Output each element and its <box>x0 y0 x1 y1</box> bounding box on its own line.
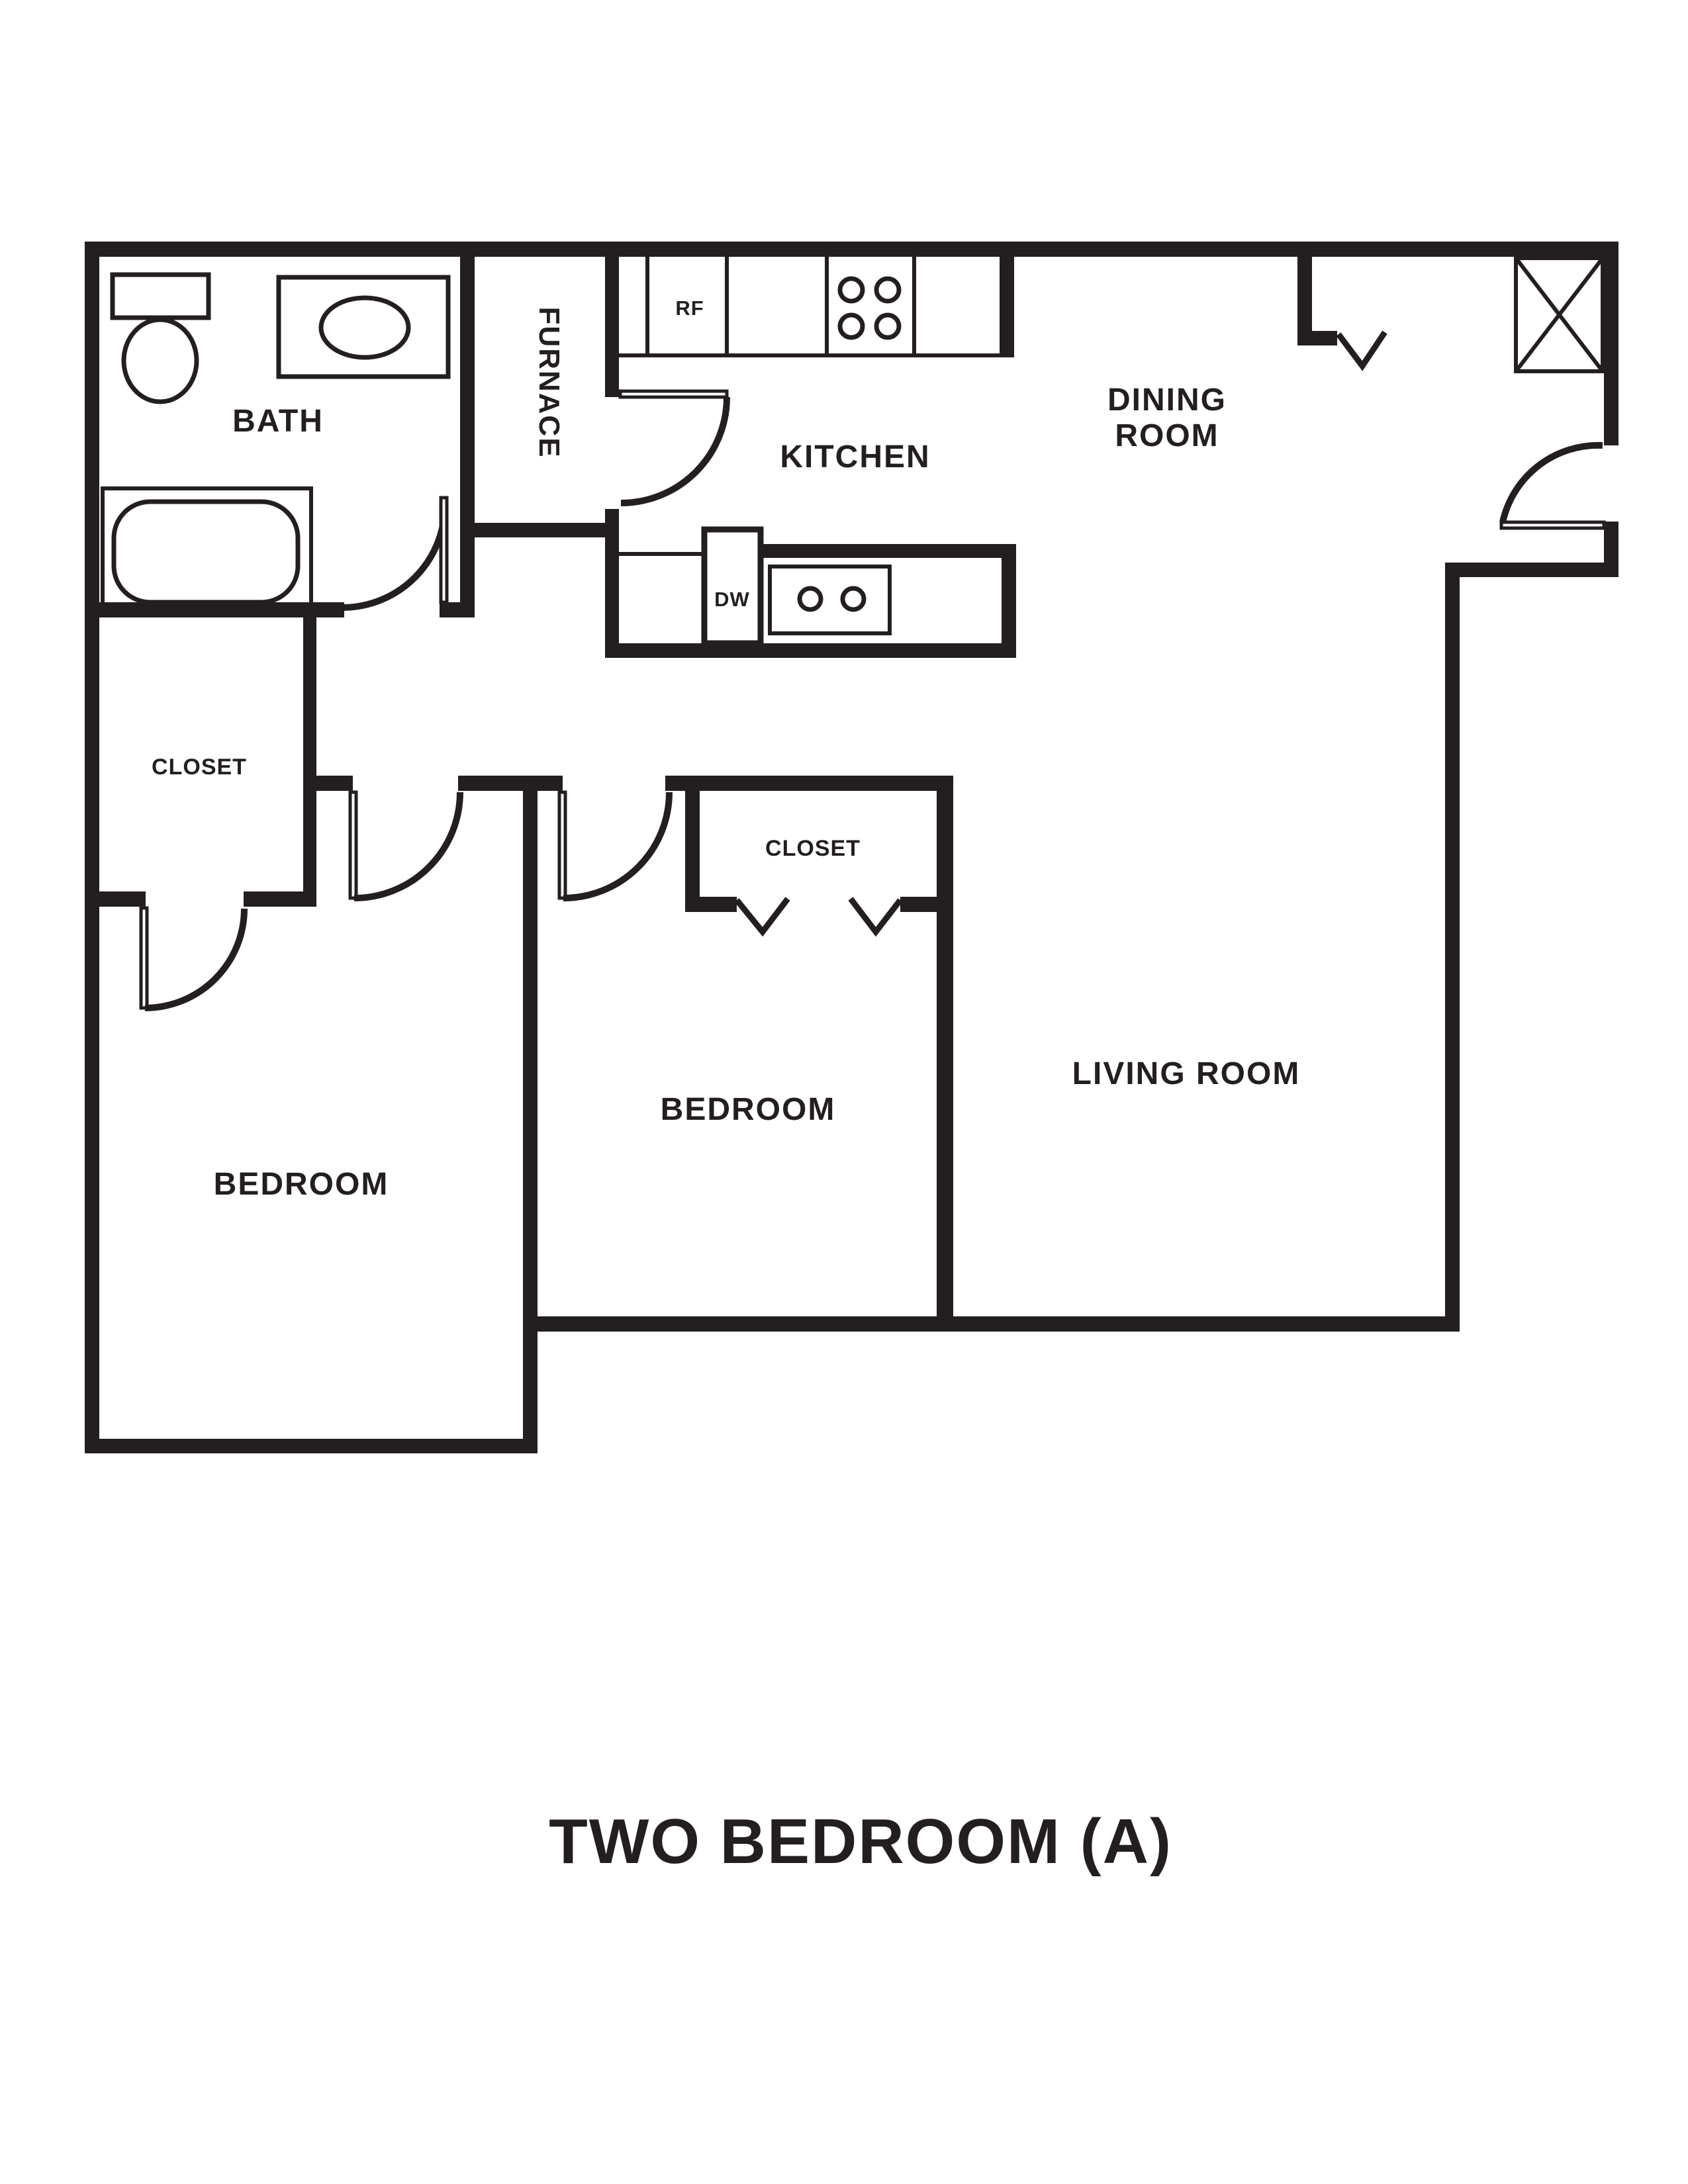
plan-title: TWO BEDROOM (A) <box>549 1806 1172 1877</box>
dining-room-label-line2: ROOM <box>1115 418 1219 453</box>
bath-door-arc <box>344 507 445 608</box>
closet-left-label: CLOSET <box>152 754 247 780</box>
wall-kitchen-left-upper <box>605 253 619 397</box>
wall-closet-left-bottom-e <box>244 891 303 907</box>
wall-counter-low-top <box>761 544 1016 558</box>
bedroom-left-door-arc <box>354 792 460 898</box>
wall-closet-left-bottom-w <box>99 891 146 907</box>
wall-left <box>85 253 99 1453</box>
wall-furnace-bottom <box>460 523 619 537</box>
bedroom-left-label: BEDROOM <box>214 1167 389 1202</box>
water-heater-icon <box>1516 258 1603 371</box>
wall-closet-mid-stub-r <box>900 897 937 912</box>
kitchen-label: KITCHEN <box>780 439 930 475</box>
wall-closet-mid-top <box>665 776 953 791</box>
furnace-label: FURNACE <box>533 306 565 458</box>
entry-door-arc <box>1503 445 1603 522</box>
doors <box>141 391 1604 1008</box>
dishwasher-label: DW <box>714 588 750 611</box>
wall-south <box>523 1316 1460 1332</box>
closet-mid-vmark-right <box>851 899 900 932</box>
wall-hall-seg-b <box>458 776 563 791</box>
wall-entry-jog <box>1445 563 1618 577</box>
bedroom-middle-door-arc <box>563 792 669 898</box>
wall-bath-door-stub <box>440 602 475 617</box>
bath-label: BATH <box>232 404 324 439</box>
wall-closet-mid-stub-l <box>700 897 737 912</box>
bedroom-middle-label: BEDROOM <box>661 1092 836 1127</box>
living-room-label: LIVING ROOM <box>1072 1056 1301 1091</box>
toilet-icon <box>113 275 209 402</box>
wall-bedroom-living-divider <box>937 791 953 1332</box>
dining-vmark <box>1338 332 1385 366</box>
wall-dining-nib <box>1312 331 1337 345</box>
stove-burners-icon <box>840 279 899 338</box>
wall-kitchen-left-lower <box>605 509 619 658</box>
bath-sink-icon <box>279 277 448 377</box>
wall-right-stub <box>1604 522 1618 577</box>
furnace-door-leaf <box>620 391 727 397</box>
refrigerator-label: RF <box>675 296 704 320</box>
wall-counter-low-right <box>1002 544 1016 658</box>
bathtub-icon <box>103 488 311 615</box>
wall-bedroom-left-bottom <box>85 1439 538 1453</box>
wall-closet-mid-left <box>685 791 700 912</box>
wall-counter-low-bottom <box>605 643 1016 658</box>
bedroom-middle-door-leaf <box>559 792 565 898</box>
closet-middle-label: CLOSET <box>765 836 861 861</box>
wall-bath-furnace-divider <box>460 253 475 617</box>
dishwasher-icon <box>704 529 761 643</box>
wall-hall-seg-a <box>303 776 353 791</box>
closet-left-door-arc <box>145 909 244 1008</box>
bedroom-left-door-leaf <box>350 792 356 898</box>
floor-plan-drawing: BATH FURNACE KITCHEN DINING ROOM RF DW C… <box>0 0 1688 2184</box>
entry-door-leaf <box>1501 522 1604 528</box>
furnace-door-arc <box>621 397 727 503</box>
bath-fixtures <box>103 275 448 615</box>
wall-dining-divider <box>1297 253 1312 345</box>
wall-right-upper <box>1604 253 1618 445</box>
page-body: { "plan": { "title": "TWO BEDROOM (A)", … <box>0 0 1688 2184</box>
wall-top <box>85 242 1618 257</box>
kitchen-sink-icon <box>770 567 890 633</box>
closet-mid-vmark-left <box>737 899 788 932</box>
wall-bedroom-divider <box>523 791 538 1453</box>
wall-counter-end <box>1000 257 1014 357</box>
closet-left-door-leaf <box>141 908 147 1008</box>
floor-plan-page: BATH FURNACE KITCHEN DINING ROOM RF DW C… <box>0 0 1688 2184</box>
wall-closet-left-right <box>303 617 316 907</box>
dining-room-label-line1: DINING <box>1107 383 1227 418</box>
wall-living-right <box>1445 563 1460 1332</box>
bath-door-leaf <box>441 498 447 602</box>
